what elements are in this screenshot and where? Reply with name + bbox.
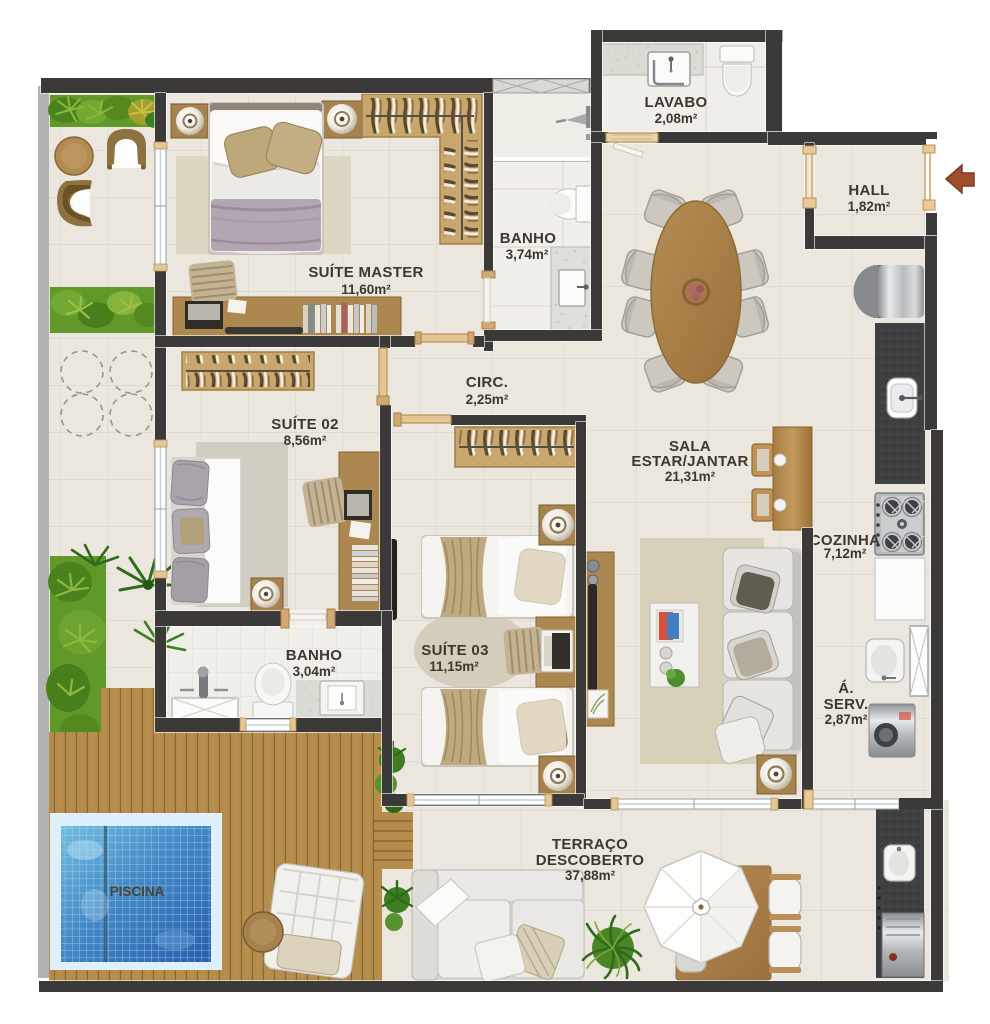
svg-text:BANHO: BANHO	[286, 647, 343, 664]
svg-text:BANHO: BANHO	[500, 230, 557, 247]
svg-text:DESCOBERTO: DESCOBERTO	[536, 852, 645, 869]
svg-text:CIRC.: CIRC.	[466, 374, 508, 391]
svg-text:SUÍTE 03: SUÍTE 03	[421, 642, 488, 659]
svg-text:2,08m²: 2,08m²	[655, 111, 698, 126]
svg-text:LAVABO: LAVABO	[645, 94, 708, 111]
svg-text:SUÍTE MASTER: SUÍTE MASTER	[308, 264, 423, 281]
svg-text:ESTAR/JANTAR: ESTAR/JANTAR	[631, 453, 748, 470]
svg-text:2,87m²: 2,87m²	[825, 712, 868, 727]
svg-text:21,31m²: 21,31m²	[665, 469, 716, 484]
svg-text:PISCINA: PISCINA	[110, 884, 165, 899]
svg-text:7,12m²: 7,12m²	[824, 546, 867, 561]
svg-text:3,74m²: 3,74m²	[506, 247, 549, 262]
svg-text:2,25m²: 2,25m²	[466, 392, 509, 407]
svg-text:1,82m²: 1,82m²	[848, 199, 891, 214]
svg-text:HALL: HALL	[848, 182, 889, 199]
svg-text:SUÍTE 02: SUÍTE 02	[271, 416, 338, 433]
svg-text:Á.: Á.	[838, 680, 854, 697]
svg-text:SERV.: SERV.	[824, 696, 869, 713]
svg-text:3,04m²: 3,04m²	[293, 664, 336, 679]
svg-text:TERRAÇO: TERRAÇO	[552, 836, 628, 853]
svg-text:11,15m²: 11,15m²	[429, 659, 479, 674]
svg-text:37,88m²: 37,88m²	[565, 868, 616, 883]
svg-text:11,60m²: 11,60m²	[341, 282, 391, 297]
svg-text:8,56m²: 8,56m²	[284, 433, 327, 448]
